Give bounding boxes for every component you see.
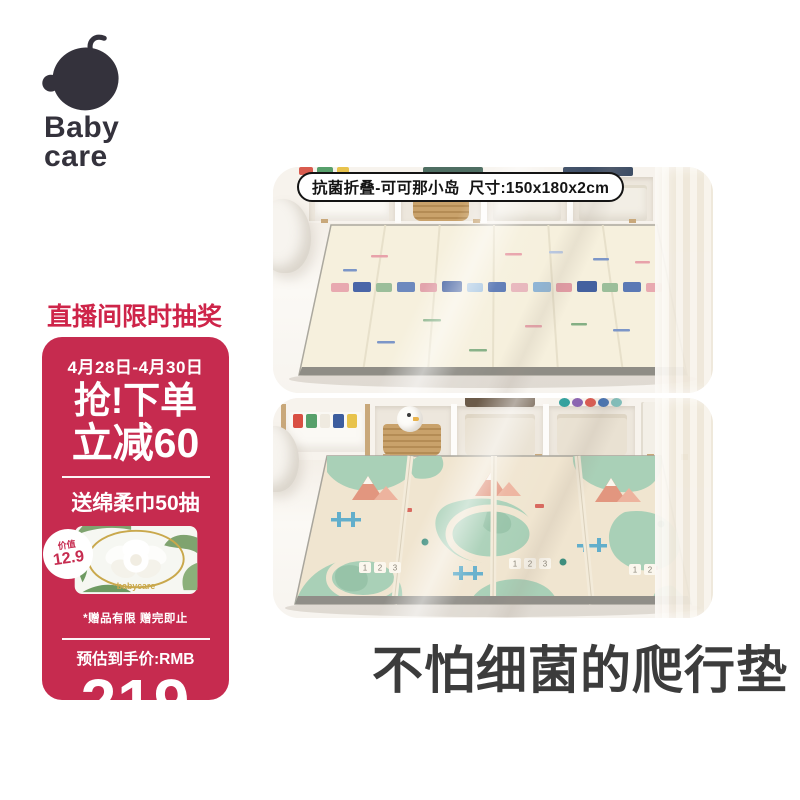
svg-text:1: 1	[363, 564, 368, 573]
book-spine	[306, 414, 317, 428]
green-island-mat: 1 2 3 1 2 3 1 2	[273, 446, 713, 618]
sheer-curtain	[655, 398, 713, 618]
book-spine	[333, 414, 344, 428]
promo-date-range: 4月28日-4月30日	[42, 337, 229, 378]
svg-text:3: 3	[543, 560, 548, 569]
ball-toy	[572, 398, 583, 407]
ball-toy	[559, 398, 570, 407]
product-photo-green-mat: 1 2 3 1 2 3 1 2	[273, 398, 713, 618]
svg-text:2: 2	[648, 566, 653, 575]
babycare-head-icon	[40, 34, 126, 112]
plush-bird-eye	[407, 413, 411, 417]
wipes-brand-text: babycare	[116, 581, 155, 591]
main-headline: 不怕细菌的爬行垫	[372, 629, 792, 703]
brand-logo-line1: Baby	[44, 114, 180, 143]
product-variant-label: 抗菌折叠-可可那小岛 尺寸:150x180x2cm	[297, 172, 624, 202]
promo-hook-text: 抢!下单	[42, 381, 229, 422]
brand-logo: Baby care	[40, 34, 180, 171]
gift-disclaimer: *赠品有限 赠完即止	[42, 610, 229, 626]
sheer-curtain	[655, 167, 713, 393]
svg-text:1: 1	[513, 560, 518, 569]
svg-text:3: 3	[393, 564, 398, 573]
book-spine	[320, 414, 330, 428]
product-photo-cream-mat: 抗菌折叠-可可那小岛 尺寸:150x180x2cm	[273, 167, 713, 393]
price-value: 219	[42, 670, 229, 734]
promo-divider-top	[62, 476, 210, 478]
promo-card: 4月28日-4月30日 抢!下单 立减60 送绵柔巾50抽	[42, 337, 229, 700]
plush-bird-toy	[397, 406, 423, 432]
promo-gift-text: 送绵柔巾50抽	[42, 487, 229, 517]
svg-text:2: 2	[378, 564, 383, 573]
ball-toy	[598, 398, 609, 407]
brand-logo-line2: care	[44, 143, 180, 172]
product-ad-canvas: Baby care 直播间限时抽奖 4月28日-4月30日 抢!下单 立减60 …	[0, 0, 800, 800]
gift-wipes-image: babycare 价值 12.9	[72, 524, 200, 601]
gift-value-amount: 12.9	[52, 549, 85, 569]
live-lottery-header: 直播间限时抽奖	[47, 297, 222, 333]
ball-toy	[585, 398, 596, 407]
svg-text:1: 1	[633, 566, 638, 575]
book-spine	[293, 414, 303, 428]
svg-text:2: 2	[528, 560, 533, 569]
upper-bin-contents	[465, 398, 535, 407]
promo-divider-bottom	[62, 638, 210, 640]
cream-train-mat	[273, 211, 713, 393]
plush-bird-beak	[413, 417, 419, 421]
ball-toy	[611, 398, 622, 407]
promo-discount-text: 立减60	[42, 422, 229, 465]
brand-logo-text: Baby care	[44, 114, 180, 171]
book-spine	[347, 414, 357, 428]
